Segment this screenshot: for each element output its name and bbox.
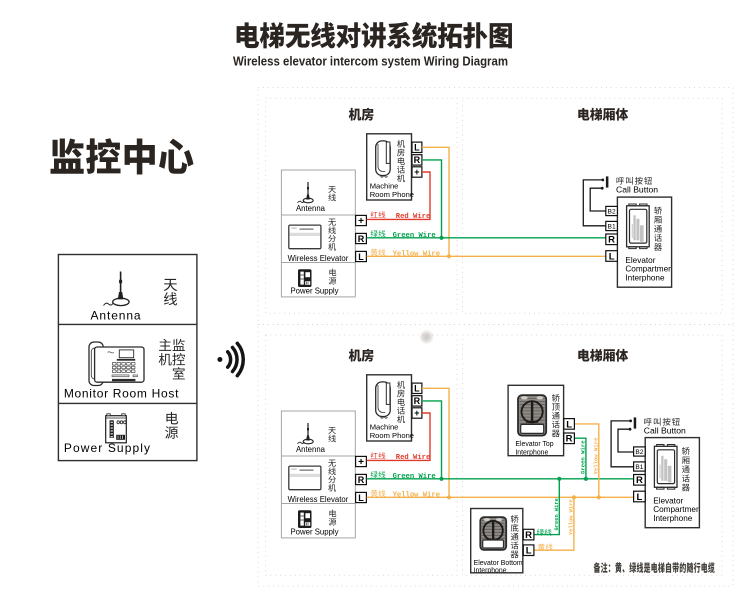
svg-text:Antenna: Antenna	[296, 445, 326, 454]
svg-text:Yellow Wire: Yellow Wire	[393, 250, 440, 258]
svg-text:Antenna: Antenna	[296, 204, 326, 213]
svg-text:+: +	[414, 167, 419, 177]
svg-text:B1: B1	[608, 223, 616, 230]
svg-text:+: +	[358, 216, 364, 227]
svg-text:Wireless Elevator: Wireless Elevator	[288, 254, 349, 263]
svg-text:R: R	[608, 235, 615, 246]
svg-text:Yellow Wire: Yellow Wire	[569, 499, 575, 535]
svg-text:Call Button: Call Button	[644, 426, 686, 436]
svg-text:Green Wire: Green Wire	[393, 473, 436, 481]
svg-text:Antenna: Antenna	[90, 309, 141, 323]
svg-text:Call Button: Call Button	[616, 185, 658, 195]
svg-text:L: L	[609, 251, 615, 262]
svg-text:Wireless Elevator: Wireless Elevator	[288, 495, 349, 504]
svg-text:L: L	[566, 419, 572, 430]
svg-text:Room Phone: Room Phone	[370, 431, 414, 440]
svg-text:Green Wire: Green Wire	[393, 232, 436, 240]
svg-text:Green Wire: Green Wire	[580, 440, 587, 474]
svg-text:L: L	[636, 492, 642, 503]
svg-text:Interphone: Interphone	[515, 449, 548, 456]
svg-text:Elevator: Elevator	[653, 496, 683, 505]
svg-text:Yellow Wire: Yellow Wire	[393, 491, 440, 499]
svg-text:Elevator Top: Elevator Top	[515, 441, 553, 448]
svg-text:Monitor Room Host: Monitor Room Host	[64, 387, 179, 401]
svg-text:L: L	[526, 546, 532, 557]
svg-text:L: L	[414, 384, 420, 394]
svg-text:Red Wire: Red Wire	[396, 454, 431, 462]
svg-text:Room Phone: Room Phone	[370, 190, 414, 199]
svg-text:L: L	[414, 143, 420, 153]
svg-text:R: R	[414, 155, 421, 165]
svg-text:R: R	[525, 530, 532, 541]
svg-text:Green Wire: Green Wire	[554, 498, 560, 530]
svg-text:+: +	[414, 408, 419, 418]
svg-text:+: +	[358, 457, 364, 468]
svg-text:R: R	[566, 434, 573, 445]
svg-text:B2: B2	[608, 208, 616, 215]
svg-text:Interphone: Interphone	[653, 514, 693, 523]
svg-text:Compartment: Compartment	[625, 265, 675, 274]
svg-text:L: L	[358, 493, 364, 503]
svg-text:Elevator Bottom: Elevator Bottom	[474, 560, 523, 567]
svg-text:Power Supply: Power Supply	[290, 528, 338, 537]
svg-text:Wireless elevator intercom sys: Wireless elevator intercom system Wiring…	[233, 54, 508, 69]
svg-text:Power Supply: Power Supply	[64, 441, 151, 455]
svg-text:B2: B2	[635, 449, 643, 456]
svg-text:L: L	[358, 252, 364, 262]
svg-text:Red Wire: Red Wire	[396, 213, 431, 221]
svg-text:Power Supply: Power Supply	[290, 287, 338, 296]
svg-text:Elevator: Elevator	[625, 256, 655, 265]
svg-text:Interphone: Interphone	[625, 274, 665, 283]
svg-text:B1: B1	[635, 464, 643, 471]
svg-text:R: R	[358, 475, 365, 485]
svg-text:Yellow Wire: Yellow Wire	[593, 437, 600, 475]
svg-text:R: R	[414, 396, 421, 406]
svg-text:R: R	[358, 234, 365, 244]
svg-text:R: R	[636, 475, 643, 486]
svg-text:Compartment: Compartment	[653, 505, 703, 514]
